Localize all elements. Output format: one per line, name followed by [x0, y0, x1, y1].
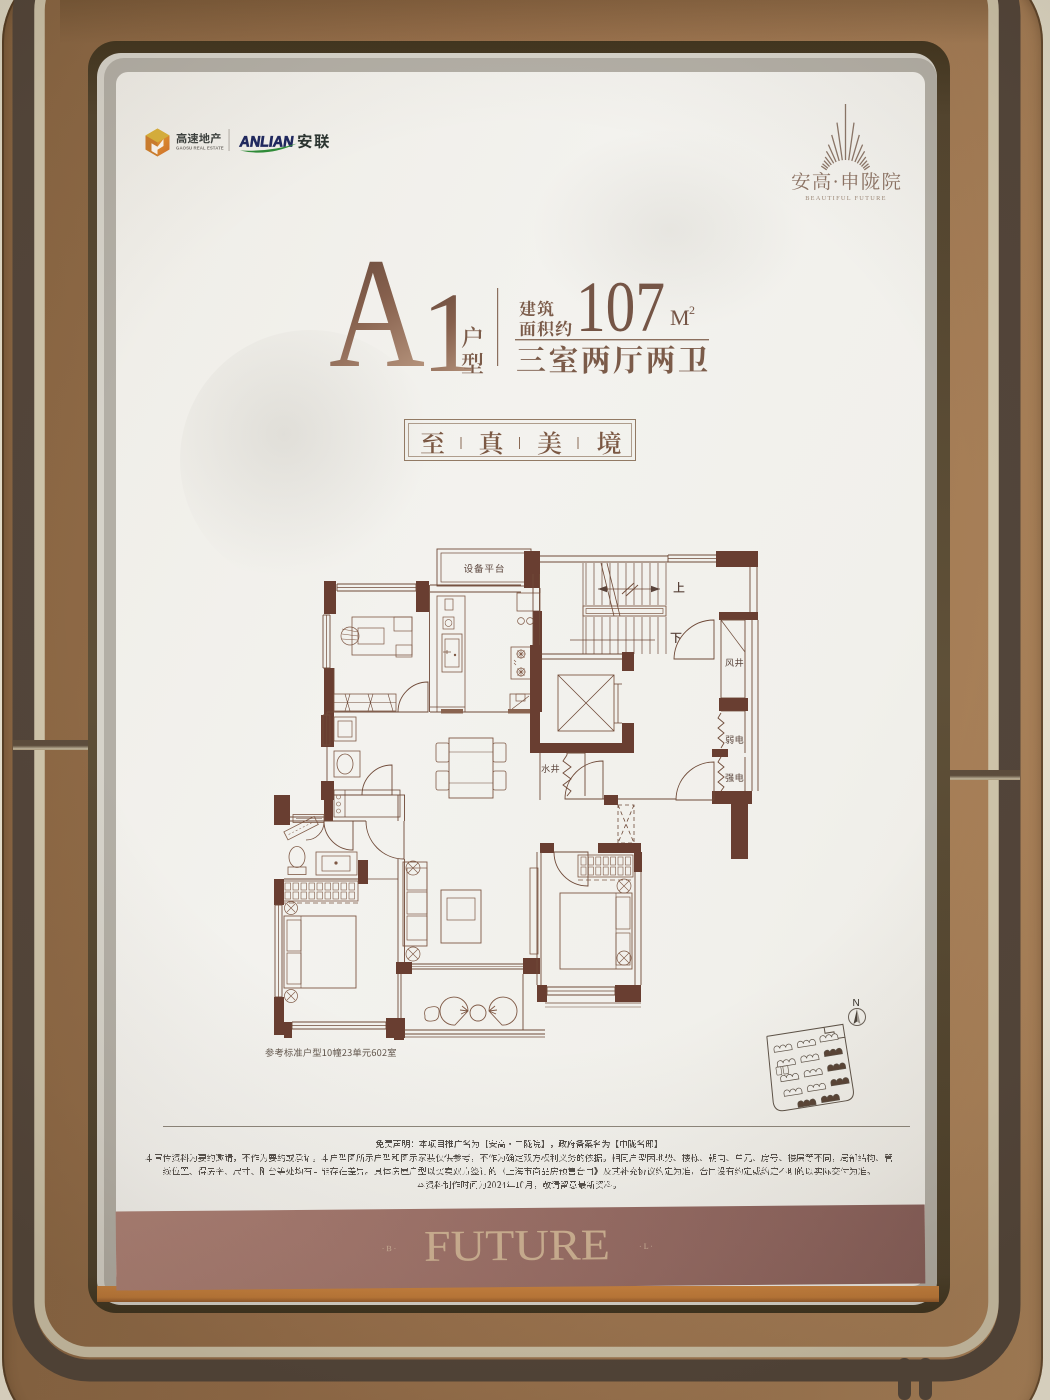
svg-text:N: N [853, 998, 860, 1009]
svg-text:GAOSU REAL ESTATE: GAOSU REAL ESTATE [176, 146, 224, 151]
svg-text:1: 1 [421, 269, 478, 396]
svg-text:· B ·: · B · [382, 1244, 397, 1253]
svg-text:ANLIAN: ANLIAN [238, 134, 294, 151]
svg-text:FUTURE: FUTURE [424, 1220, 610, 1271]
svg-text:M: M [670, 305, 690, 330]
svg-text:2: 2 [689, 303, 695, 317]
svg-text:A: A [329, 226, 425, 401]
svg-text:· L ·: · L · [639, 1242, 653, 1251]
svg-text:107: 107 [576, 267, 665, 347]
svg-text:BEAUTIFUL FUTURE: BEAUTIFUL FUTURE [805, 195, 887, 202]
